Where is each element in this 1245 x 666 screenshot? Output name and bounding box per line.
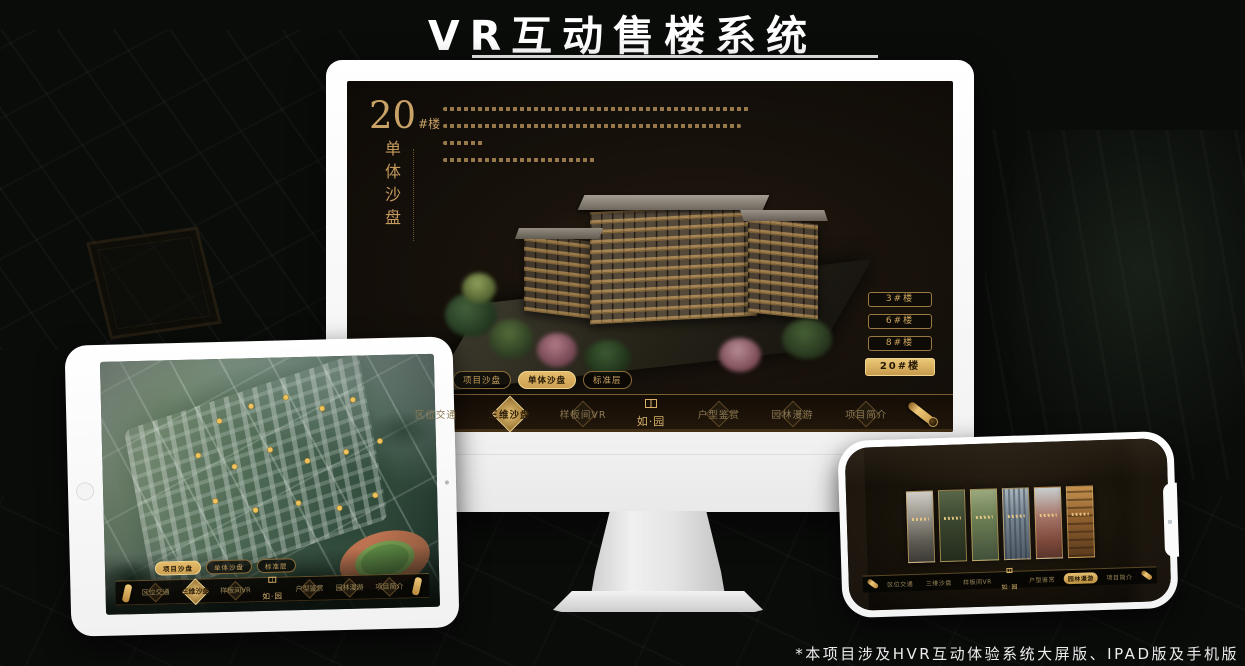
brand-logo-text: 如·园 bbox=[637, 415, 666, 428]
menu-item-showroom-vr[interactable]: 样板间VR bbox=[215, 585, 255, 596]
floor-buttons: 3#楼 6#楼 8#楼 20#楼 bbox=[865, 292, 935, 376]
gallery-panel-1[interactable] bbox=[906, 490, 935, 563]
floor-button-3[interactable]: 3#楼 bbox=[868, 292, 932, 307]
menu-item-3d-sandbox-selected[interactable]: 三维沙盘 bbox=[473, 407, 547, 421]
unit-number-text: 20 bbox=[369, 94, 416, 137]
building-wing-right bbox=[748, 217, 818, 319]
gallery-panel-4[interactable] bbox=[1002, 487, 1031, 560]
brand-seal-icon bbox=[1006, 567, 1012, 572]
menu-item-project-intro[interactable]: 项目简介 bbox=[829, 407, 903, 421]
floor-button-20-selected[interactable]: 20#楼 bbox=[865, 358, 935, 376]
scroll-handle-icon[interactable] bbox=[119, 583, 135, 603]
intro-text-line bbox=[443, 107, 749, 111]
title-underline bbox=[472, 55, 878, 58]
menu-item-3d-sandbox-selected[interactable]: 三维沙盘 bbox=[175, 586, 215, 597]
tablet-screen: 项目沙盘 单体沙盘 标准层 区位交通 三维沙盘 样板间VR 如·园 户型鉴赏 园… bbox=[100, 354, 440, 615]
menu-item-location-traffic[interactable]: 区位交通 bbox=[881, 578, 920, 588]
brand-logo: 如·园 bbox=[996, 567, 1023, 593]
menu-item-garden-tour[interactable]: 园林漫游 bbox=[756, 407, 830, 421]
subtab-unit-sandbox-selected[interactable]: 单体沙盘 bbox=[518, 371, 576, 389]
brand-logo: 如·园 bbox=[255, 576, 290, 603]
gallery-panel-2[interactable] bbox=[938, 489, 967, 562]
brand-logo: 如·园 bbox=[620, 399, 682, 429]
gallery-panel-6[interactable] bbox=[1066, 485, 1095, 558]
monitor-stand-base bbox=[553, 591, 763, 612]
scroll-handle-icon[interactable] bbox=[865, 577, 881, 591]
tree bbox=[782, 319, 832, 359]
page-title: VR互动售楼系统 bbox=[0, 2, 1245, 62]
subtab-project-sandbox[interactable]: 项目沙盘 bbox=[453, 371, 511, 389]
building-roof bbox=[578, 195, 769, 210]
intro-text-line bbox=[443, 141, 485, 145]
brand-seal-icon bbox=[268, 576, 276, 582]
menu-item-3d-sandbox[interactable]: 三维沙盘 bbox=[919, 577, 958, 587]
tree-pink bbox=[719, 338, 761, 372]
scroll-handle-icon[interactable] bbox=[903, 399, 941, 429]
building-wing-left bbox=[524, 234, 594, 320]
view-subtabs: 项目沙盘 单体沙盘 标准层 bbox=[453, 371, 632, 389]
menu-item-garden-tour-selected[interactable]: 园林漫游 bbox=[1061, 572, 1100, 584]
menu-item-garden-tour[interactable]: 园林漫游 bbox=[329, 582, 369, 593]
building-main-block bbox=[590, 204, 757, 325]
menu-item-project-intro[interactable]: 项目简介 bbox=[1100, 571, 1139, 581]
tree bbox=[462, 273, 496, 303]
background-plaque bbox=[86, 227, 222, 340]
menu-item-floorplan[interactable]: 户型鉴赏 bbox=[289, 583, 329, 594]
tree bbox=[489, 319, 533, 359]
building-roof-left bbox=[515, 228, 603, 239]
background-map-texture bbox=[0, 30, 360, 350]
brand-logo-text: 如·园 bbox=[1001, 583, 1018, 591]
building-render[interactable] bbox=[427, 161, 867, 376]
menu-item-showroom-vr[interactable]: 样板间VR bbox=[546, 407, 620, 421]
phone-notch bbox=[1163, 482, 1179, 556]
gallery-panel-5[interactable] bbox=[1034, 486, 1063, 559]
menu-item-floorplan[interactable]: 户型鉴赏 bbox=[1023, 574, 1062, 584]
monitor-stand-neck bbox=[591, 511, 725, 595]
background-photo bbox=[985, 130, 1245, 480]
scroll-handle-icon[interactable] bbox=[409, 576, 425, 596]
unit-suffix-text: #楼 bbox=[418, 117, 440, 131]
floor-button-6[interactable]: 6#楼 bbox=[868, 314, 932, 329]
building-roof-right bbox=[740, 210, 827, 221]
floor-button-8[interactable]: 8#楼 bbox=[868, 336, 932, 351]
scroll-handle-icon[interactable] bbox=[1138, 568, 1154, 582]
tablet-subtab-project-sandbox-selected[interactable]: 项目沙盘 bbox=[155, 561, 201, 576]
subtab-standard-floor[interactable]: 标准层 bbox=[583, 371, 632, 389]
tablet-device: 项目沙盘 单体沙盘 标准层 区位交通 三维沙盘 样板间VR 如·园 户型鉴赏 园… bbox=[65, 336, 460, 636]
scene-gallery bbox=[906, 485, 1095, 563]
unit-english-caption bbox=[413, 149, 414, 241]
intro-text-line bbox=[443, 124, 741, 128]
phone-device: 区位交通 三维沙盘 样板间VR 如·园 户型鉴赏 园林漫游 项目简介 bbox=[837, 431, 1178, 618]
footnote: *本项目涉及HVR互动体验系统大屏版、IPAD版及手机版 bbox=[795, 643, 1239, 664]
menu-item-location-traffic[interactable]: 区位交通 bbox=[135, 587, 175, 598]
menu-item-project-intro[interactable]: 项目简介 bbox=[369, 581, 409, 592]
camera-icon bbox=[445, 480, 449, 484]
unit-subtitle: 单体沙盘 bbox=[379, 140, 403, 252]
gallery-panel-3[interactable] bbox=[970, 488, 999, 561]
unit-number: 20#楼 bbox=[369, 97, 440, 134]
home-button[interactable] bbox=[76, 482, 94, 500]
menu-item-floorplan[interactable]: 户型鉴赏 bbox=[682, 407, 756, 421]
brand-logo-text: 如·园 bbox=[262, 591, 283, 600]
menu-item-showroom-vr[interactable]: 样板间VR bbox=[958, 576, 997, 586]
phone-screen: 区位交通 三维沙盘 样板间VR 如·园 户型鉴赏 园林漫游 项目简介 bbox=[845, 438, 1172, 611]
tablet-subtab-unit-sandbox[interactable]: 单体沙盘 bbox=[206, 559, 252, 574]
tablet-subtab-standard-floor[interactable]: 标准层 bbox=[257, 558, 296, 573]
brand-seal-icon bbox=[645, 399, 657, 408]
